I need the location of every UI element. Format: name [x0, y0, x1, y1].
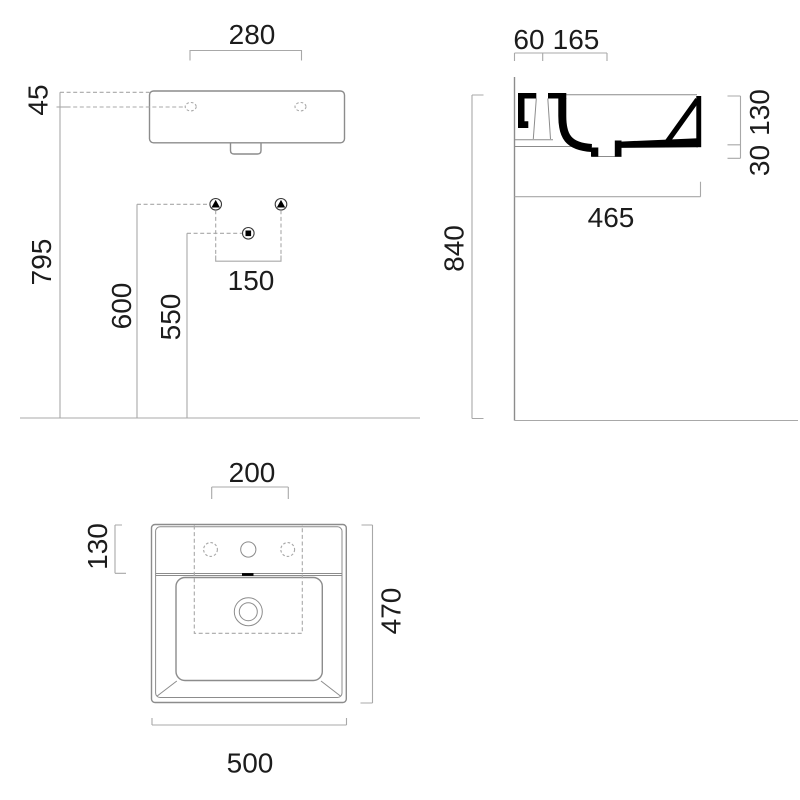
- faucet-hole-right: [295, 103, 306, 111]
- dim-bracket-280: [190, 51, 302, 61]
- dim-label-45: 45: [22, 84, 53, 115]
- section-deck: [548, 93, 566, 99]
- side-view: 60 165 130 30 465 840: [438, 24, 798, 421]
- section-front-slope: [666, 100, 698, 144]
- dim-label-130-plan: 130: [82, 523, 113, 570]
- dim-bracket-130-plan: [115, 525, 126, 573]
- dim-bracket-200: [212, 487, 289, 499]
- basin-front-outline: [150, 91, 345, 143]
- dim-label-280: 280: [229, 19, 276, 50]
- section-back-hook: [518, 93, 536, 128]
- mounting-bracket-symbol-left: [210, 199, 222, 211]
- dim-label-500: 500: [227, 747, 274, 778]
- section-drain-left: [591, 148, 598, 157]
- faucet-hole-left: [185, 103, 196, 111]
- bowl-outline: [176, 578, 322, 681]
- dim-label-165: 165: [553, 24, 600, 55]
- dim-label-130-side: 130: [744, 89, 775, 136]
- bowl-corner-slopes: [157, 681, 340, 696]
- tap-hole-center: [241, 542, 256, 557]
- dim-label-840: 840: [438, 225, 469, 272]
- dim-bracket-465: [515, 182, 701, 197]
- section-bowl-back-wall: [562, 98, 591, 148]
- dim-label-60: 60: [513, 24, 544, 55]
- back-support-outline: [533, 99, 550, 140]
- drain-hole-inner: [239, 603, 257, 621]
- dim-label-470: 470: [375, 588, 406, 635]
- tap-hole-right: [281, 543, 295, 557]
- dim-label-465: 465: [588, 202, 635, 233]
- basin-plan-outer-outline: [152, 525, 347, 703]
- dim-label-150: 150: [228, 265, 275, 296]
- tap-hole-left: [204, 543, 218, 557]
- dim-label-200: 200: [229, 457, 276, 488]
- dim-bracket-130-30: [728, 96, 741, 158]
- basin-plan-inner-edge: [156, 527, 342, 698]
- plan-view: 200 130 470 500: [82, 457, 407, 779]
- dim-label-550: 550: [155, 294, 186, 341]
- dim-bracket-500: [152, 718, 347, 725]
- dim-bracket-470: [361, 525, 373, 703]
- dim-label-795: 795: [26, 239, 57, 286]
- dim-label-30: 30: [744, 145, 775, 176]
- washbasin-dimension-drawing: 280 45 795 600 550: [0, 0, 800, 800]
- dim-bracket-150: [216, 256, 281, 262]
- section-bowl-bottom: [618, 138, 698, 148]
- dim-label-600: 600: [106, 283, 137, 330]
- mounting-bracket-symbol-right: [275, 199, 287, 211]
- drain-position-symbol: [243, 228, 255, 240]
- drain-trap-outline: [231, 143, 262, 154]
- front-view: 280 45 795 600 550: [20, 19, 420, 418]
- drain-hole-outer: [234, 598, 262, 626]
- technical-drawing-page: 280 45 795 600 550: [0, 0, 800, 800]
- dim-bracket-840: [472, 95, 484, 419]
